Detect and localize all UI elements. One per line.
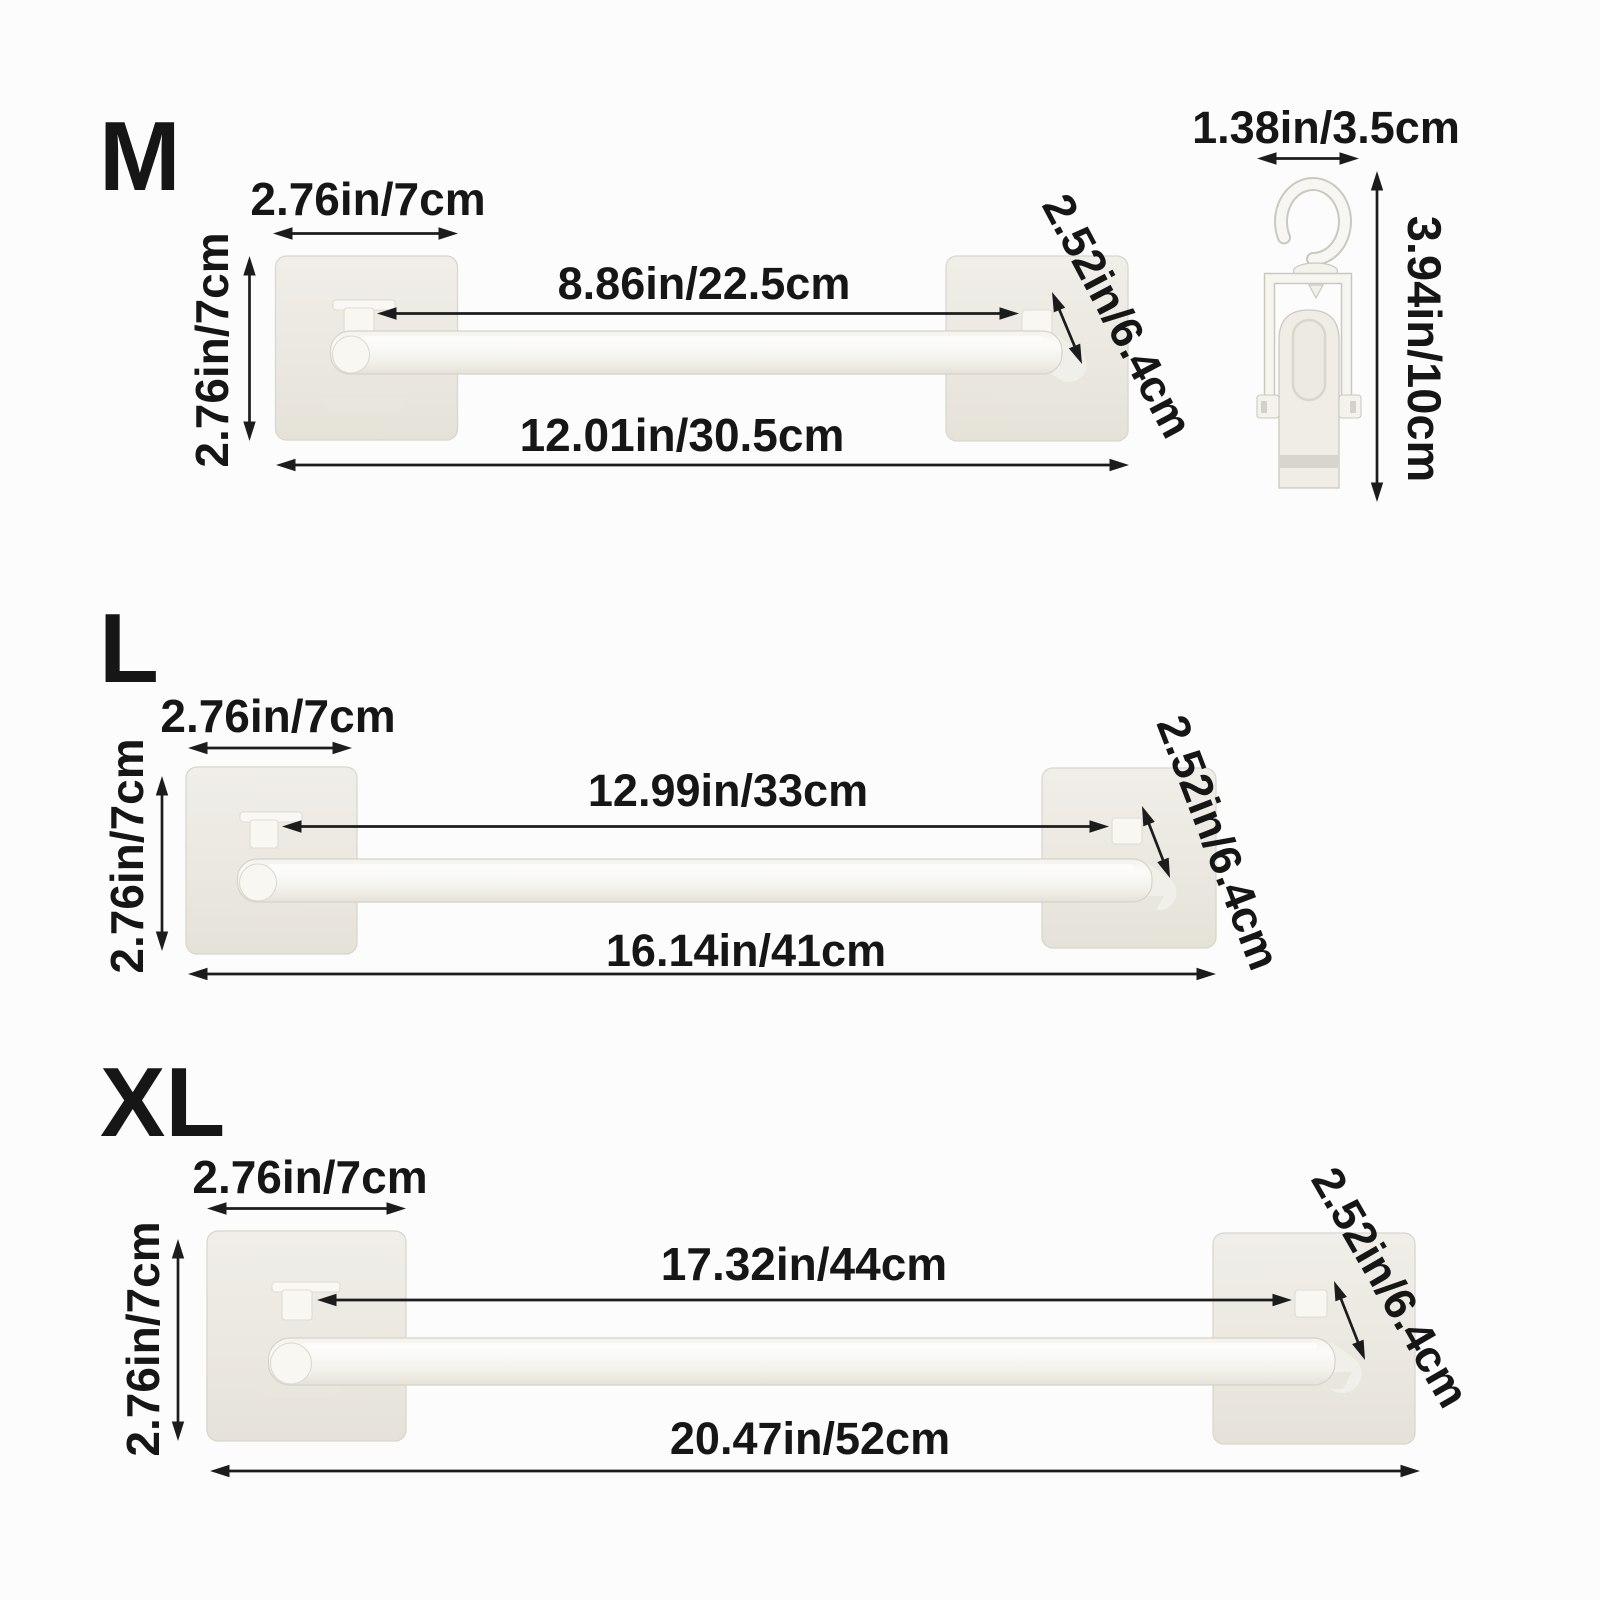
- svg-text:2.76in/7cm: 2.76in/7cm: [250, 173, 485, 225]
- svg-text:M: M: [99, 101, 181, 211]
- svg-text:2.76in/7cm: 2.76in/7cm: [101, 738, 153, 973]
- svg-text:2.76in/7cm: 2.76in/7cm: [160, 690, 395, 742]
- svg-text:12.99in/33cm: 12.99in/33cm: [588, 765, 868, 816]
- svg-text:16.14in/41cm: 16.14in/41cm: [606, 925, 886, 976]
- svg-text:2.76in/7cm: 2.76in/7cm: [186, 232, 238, 467]
- svg-text:12.01in/30.5cm: 12.01in/30.5cm: [520, 409, 845, 461]
- svg-text:1.38in/3.5cm: 1.38in/3.5cm: [1192, 102, 1460, 153]
- svg-text:2.76in/7cm: 2.76in/7cm: [192, 1151, 427, 1203]
- svg-text:17.32in/44cm: 17.32in/44cm: [661, 1238, 947, 1290]
- svg-text:XL: XL: [100, 1047, 225, 1157]
- svg-text:2.76in/7cm: 2.76in/7cm: [117, 1221, 169, 1456]
- svg-text:8.86in/22.5cm: 8.86in/22.5cm: [558, 258, 851, 309]
- svg-text:20.47in/52cm: 20.47in/52cm: [670, 1413, 950, 1464]
- svg-text:L: L: [99, 593, 159, 703]
- svg-text:3.94in/10cm: 3.94in/10cm: [1398, 216, 1451, 483]
